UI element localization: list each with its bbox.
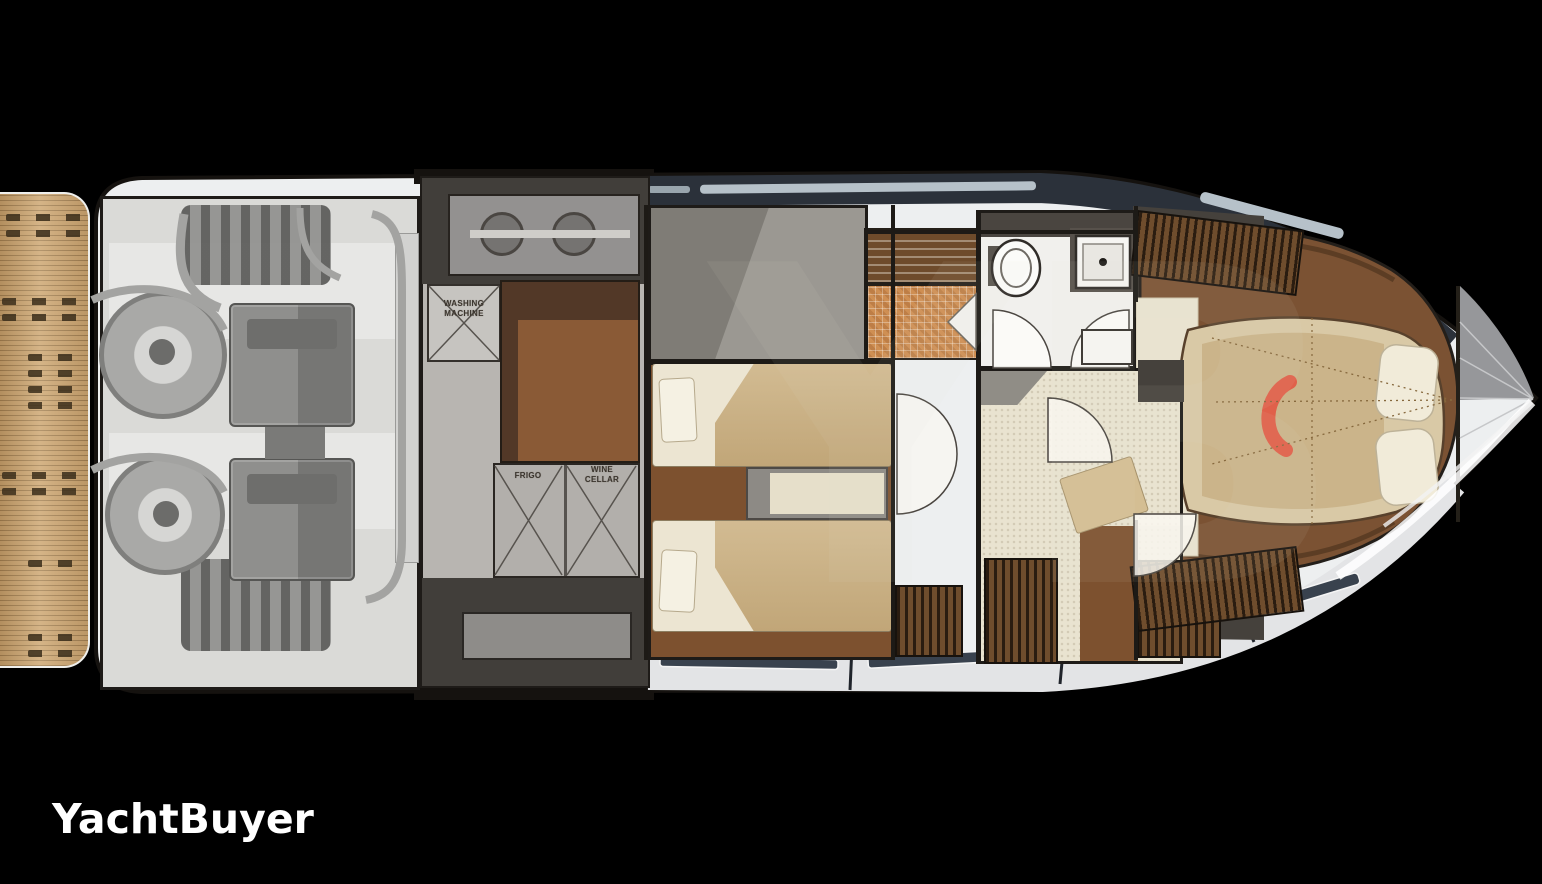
engine-block-starboard <box>229 458 355 581</box>
generator-shaft <box>470 230 630 238</box>
valve-cover <box>247 474 337 504</box>
fuel-tank <box>395 233 419 563</box>
engine-coupling <box>265 427 325 459</box>
teak-dash-row <box>28 354 84 361</box>
engine-block-port <box>229 303 355 427</box>
washing-machine-unit <box>427 284 501 362</box>
teak-dash-row <box>28 560 84 567</box>
teak-dash-row <box>2 488 84 495</box>
exhaust-manifold <box>181 205 331 285</box>
transom-bottom-wall <box>414 687 654 700</box>
teak-dash-row <box>2 314 84 321</box>
teak-dash-row <box>28 386 84 393</box>
teak-dash-row <box>28 402 84 409</box>
washing-machine-label: WASHING MACHINE <box>427 299 501 318</box>
watermark: YB <box>620 160 1420 700</box>
yachtbuyer-logo: YachtBuyer <box>52 796 314 842</box>
bow-upper-wedge <box>1460 286 1534 400</box>
frigo-label: FRIGO <box>496 471 560 481</box>
teak-dash-row <box>28 634 84 641</box>
washing-machine-label-line: MACHINE <box>427 309 501 319</box>
engine-room <box>100 196 420 690</box>
washing-machine-label-line: WASHING <box>427 299 501 309</box>
gearbox-hub <box>149 339 175 365</box>
equipment-box <box>462 612 632 660</box>
teak-dash-row <box>2 472 84 479</box>
gearbox-hub <box>153 501 179 527</box>
valve-cover <box>247 319 337 349</box>
generator-unit <box>448 194 640 276</box>
teak-dash-row <box>2 298 84 305</box>
bow-radiating-lines <box>1460 322 1533 438</box>
teak-dash-row <box>28 650 84 657</box>
yacht-floorplan-canvas: WASHING MACHINE FRIGO WINE CELLAR YB Yac… <box>0 0 1542 884</box>
swim-platform <box>0 192 90 668</box>
teak-dash-row <box>6 230 84 237</box>
storage-cabinet <box>500 280 640 463</box>
teak-dash-row <box>28 370 84 377</box>
teak-dash-row <box>6 214 84 221</box>
